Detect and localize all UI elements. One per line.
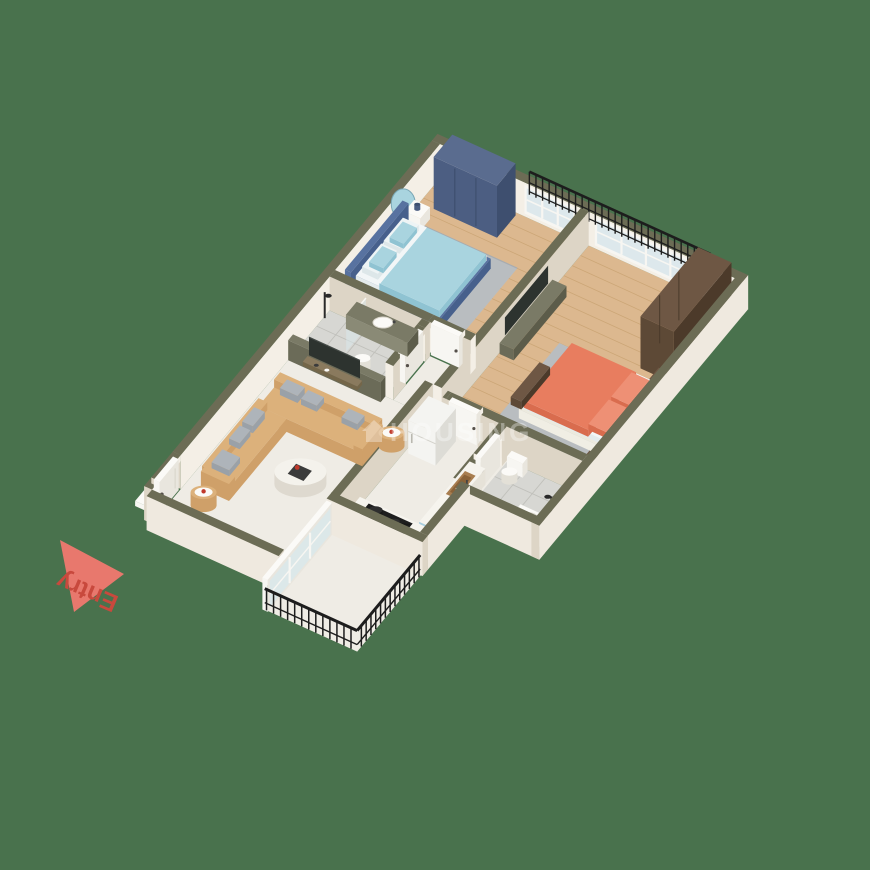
bathroom2-shower-head	[544, 495, 551, 499]
floor-plan-3d-render: HOUSING Entry	[0, 0, 870, 870]
bedroom1-lamp-a-base	[414, 208, 420, 211]
wall-bed1-bath1-b-face-se	[470, 334, 475, 375]
bathroom1-faucet	[393, 320, 396, 323]
living-shelf-decor	[314, 364, 319, 367]
wall-bath1-east-b-face-sw	[385, 362, 393, 400]
bathroom1-shower-head	[325, 294, 332, 298]
bathroom1-door-handle	[406, 364, 409, 367]
side-table-b-decor	[201, 489, 205, 493]
wall-kitchen-sw-face-se	[423, 536, 428, 577]
bedroom1-lamp-a-top	[414, 203, 420, 206]
wall-bath1-east-a-face-se	[425, 322, 430, 362]
living-shelf-decor	[324, 369, 329, 372]
bathroom1-sink-basin	[373, 317, 393, 328]
bathroom2-toilet-bowl-base	[501, 476, 517, 484]
wall-east-exterior-face-sw	[531, 522, 539, 560]
bedroom1-door-face-se	[459, 333, 463, 368]
bedroom1-door-handle	[454, 349, 457, 352]
watermark-text: HOUSING	[390, 417, 532, 447]
bathroom2-toilet-bowl-top	[501, 467, 517, 475]
coffee-table-decor	[295, 465, 300, 470]
floor-plan-stage: HOUSING Entry	[0, 0, 870, 870]
